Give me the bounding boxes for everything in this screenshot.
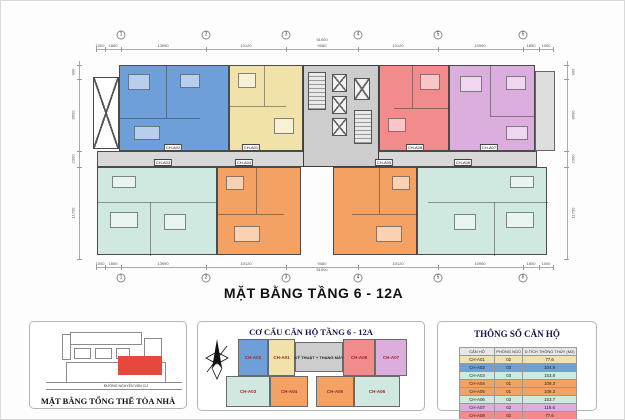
col-bedrooms: PHÒNG NGỦ (495, 348, 523, 356)
grid-bubble: 6 (519, 31, 528, 40)
grid-bubble: 5 (434, 31, 443, 40)
dim-label: 13990 (157, 43, 168, 48)
dim-label: 900 (71, 69, 76, 76)
dim-label: 1000 (542, 43, 551, 48)
side-wing (535, 71, 555, 151)
table-row[interactable]: CH-A0303153.8 (460, 372, 577, 380)
apartment-ch-a06[interactable] (417, 167, 547, 255)
grid-bubble: 1 (117, 274, 126, 283)
dim-label: 10120 (240, 261, 251, 266)
elevator (354, 78, 370, 100)
table-row[interactable]: CH-A0203104.9 (460, 364, 577, 372)
unit-tag: CH-A01 (242, 144, 260, 151)
highlighted-building[interactable] (118, 356, 162, 375)
unit-tag: CH-A04 (235, 159, 253, 166)
dim-label: 13990 (157, 261, 168, 266)
legend-unit-ch-a06[interactable]: CH-A06 (354, 376, 400, 407)
table-row[interactable]: CH-A0501109.3 (460, 388, 577, 396)
dim-label: 2300 (71, 155, 76, 164)
apartment-ch-a08[interactable] (379, 65, 449, 151)
grid-bubble: 3 (282, 274, 291, 283)
unit-tag: CH-A02 (164, 144, 182, 151)
col-unit: CĂN HỘ (460, 348, 495, 356)
elevator (332, 118, 347, 136)
dim-label: 10120 (392, 43, 403, 48)
apartment-ch-a02[interactable] (119, 65, 229, 151)
apartment-ch-a03[interactable] (97, 167, 217, 255)
staircase (308, 72, 326, 110)
legend-unit-ch-a03[interactable]: CH-A03 (226, 376, 270, 407)
dim-label: 1850 (527, 43, 536, 48)
col-area: D.TÍCH THÔNG THỦY (M2) (523, 348, 577, 356)
unit-mix-title: CƠ CẤU CĂN HỘ TẦNG 6 - 12A (198, 327, 424, 337)
grid-bubble: 6 (519, 274, 528, 283)
dim-label: 9080 (318, 261, 327, 266)
legend-unit-ch-a08[interactable]: CH-A08 (343, 339, 375, 376)
grid-bubble: 2 (202, 274, 211, 283)
grid-bubble: 4 (354, 31, 363, 40)
dim-label: 9080 (318, 43, 327, 48)
unit-mix-panel: CƠ CẤU CĂN HỘ TẦNG 6 - 12A CH-A02 CH-A01… (197, 321, 425, 411)
table-header-row: CĂN HỘ PHÒNG NGỦ D.TÍCH THÔNG THỦY (M2) (460, 348, 577, 356)
floorplan-page: 1 2 3 4 5 6 51000 1000 1850 13990 10120 … (0, 0, 625, 420)
legend-unit-ch-a05[interactable]: CH-A05 (316, 376, 354, 407)
dim-label: 1850 (527, 261, 536, 266)
dim-label: 11700 (71, 208, 76, 219)
table-row[interactable]: CH-A010277.6 (460, 356, 577, 364)
grid-bubble: 1 (117, 31, 126, 40)
apartment-ch-a04[interactable] (217, 167, 301, 255)
dim-label: 1850 (109, 261, 118, 266)
apartment-ch-a01[interactable] (229, 65, 303, 151)
unit-tag: CH-A07 (480, 144, 498, 151)
unit-specs-title: THÔNG SỐ CĂN HỘ (438, 329, 596, 339)
legend-unit-ch-a01[interactable]: CH-A01 (268, 339, 295, 376)
grid-bubble: 4 (354, 274, 363, 283)
site-plan-caption: MẶT BẰNG TỔNG THỂ TÒA NHÀ (30, 396, 186, 406)
technical-core (303, 65, 379, 167)
apartment-ch-a07[interactable] (449, 65, 535, 151)
service-shaft (93, 77, 119, 149)
unit-tag: CH-A08 (406, 144, 424, 151)
page-title: MẶT BẰNG TẦNG 6 - 12A (1, 285, 625, 301)
grid-bubble: 3 (282, 31, 291, 40)
staircase (354, 110, 372, 144)
dim-label: 8600 (571, 111, 576, 120)
dim-label: 11700 (571, 208, 576, 219)
grid-bubble: 2 (202, 31, 211, 40)
elevator (332, 74, 347, 92)
table-row[interactable]: CH-A0401109.3 (460, 380, 577, 388)
unit-tag: CH-A05 (375, 159, 393, 166)
dim-label: 8600 (71, 111, 76, 120)
table-row[interactable]: CH-A0603153.7 (460, 396, 577, 404)
legend-core: KỸ THUẬT + THANG MÁY (295, 342, 343, 372)
dim-label: 10990 (474, 43, 485, 48)
grid-bubble: 5 (434, 274, 443, 283)
dim-label: 900 (571, 69, 576, 76)
dim-label: 10120 (240, 43, 251, 48)
unit-tag: CH-A03 (154, 159, 172, 166)
dim-label: 1850 (109, 43, 118, 48)
legend-unit-ch-a02[interactable]: CH-A02 (238, 339, 268, 376)
apartment-ch-a05[interactable] (333, 167, 417, 255)
street-label: ĐƯỜNG NGUYỄN VĂN CỪ (104, 384, 148, 388)
table-row[interactable]: CH-A080277.6 (460, 412, 577, 420)
dim-label: 10120 (392, 261, 403, 266)
unit-specs-table: CĂN HỘ PHÒNG NGỦ D.TÍCH THÔNG THỦY (M2) … (459, 347, 577, 420)
compass-icon (204, 338, 230, 380)
legend-unit-ch-a04[interactable]: CH-A04 (270, 376, 308, 407)
site-plan-panel: ĐƯỜNG NGUYỄN VĂN CỪ MẶT BẰNG TỔNG THỂ TÒ… (29, 321, 187, 409)
table-row[interactable]: CH-A0702119.6 (460, 404, 577, 412)
elevator (332, 96, 347, 114)
dim-label: 1000 (542, 261, 551, 266)
dim-total: 51000 (316, 37, 327, 42)
dim-label: 10990 (474, 261, 485, 266)
dim-label: 2300 (571, 155, 576, 164)
unit-tag: CH-A06 (454, 159, 472, 166)
legend-unit-ch-a07[interactable]: CH-A07 (375, 339, 407, 376)
